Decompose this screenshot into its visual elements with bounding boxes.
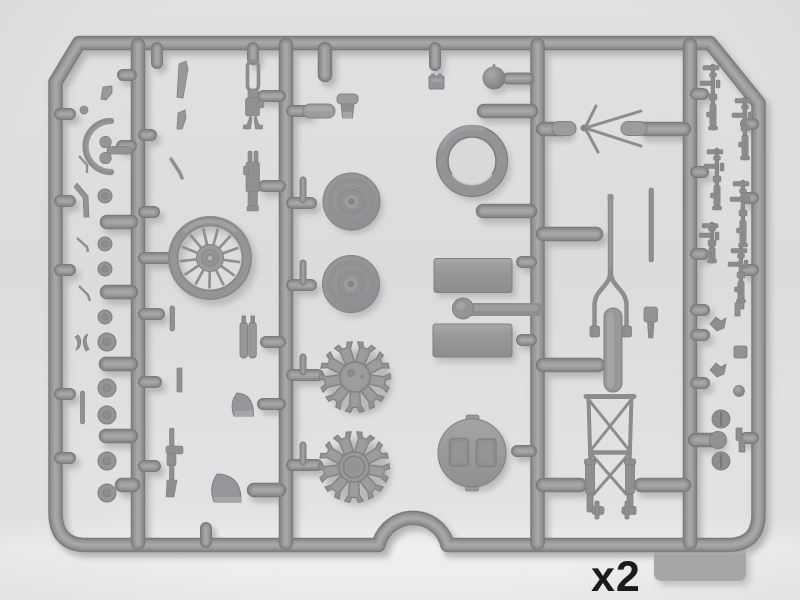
svg-text:x2: x2	[591, 553, 641, 600]
